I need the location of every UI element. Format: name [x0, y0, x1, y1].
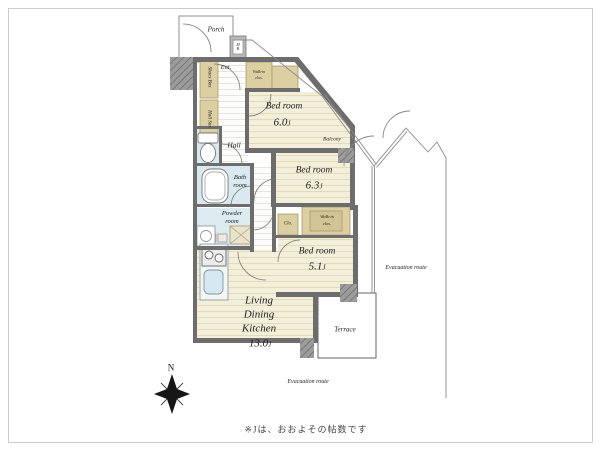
bath-room-label-1: Bath	[234, 175, 246, 182]
hall-storage-label: Hall Sto.	[207, 110, 212, 128]
ldk-size: 13.0J	[249, 339, 271, 350]
walk-in-closet-right-label-1: Walk-in	[320, 215, 334, 220]
walk-in-closet-top-label-1: Walk-in	[253, 70, 265, 74]
bedroom-60-size-value: 6.0	[274, 117, 288, 129]
tatami-note: ※Jは、おおよその帖数です	[244, 426, 367, 435]
evacuation-route-right-label: Evacuation route	[385, 265, 426, 271]
bedroom-63-label: Bed room	[296, 166, 333, 176]
bathtub-icon	[202, 169, 228, 203]
bedroom-51-label: Bed room	[299, 247, 336, 257]
neighbor-door-arc-2	[383, 111, 410, 138]
porch-label: Porch	[208, 27, 225, 34]
bedroom-51-size-unit: J	[322, 264, 325, 272]
bedroom-60-label: Bed room	[266, 102, 303, 112]
bedroom-63-size-unit: J	[319, 183, 322, 191]
ldk-size-unit: J	[268, 341, 271, 349]
bedroom-63-size: 6.3J	[306, 181, 323, 192]
floor-plan: Porch M B Ent. Shoes Box Hall Sto. Hall …	[0, 0, 600, 450]
bedroom-60-size: 6.0J	[274, 118, 291, 129]
powder-room-label-1: Powder	[222, 211, 242, 218]
counter-box-2	[218, 234, 227, 242]
terrace-label: Terrace	[334, 327, 356, 334]
meter-box-label: M B	[235, 43, 241, 51]
walk-in-closet-top-label-2: clos.	[255, 76, 262, 80]
bath-room-label-2: room	[233, 183, 246, 190]
porch-floor	[179, 16, 233, 62]
evacuation-route-bottom-label: Evacuation route	[287, 379, 328, 385]
shoes-box-label: Shoes Box	[207, 67, 212, 88]
compass-north-label: N	[168, 364, 175, 373]
bedroom-51-size-value: 5.1	[309, 261, 323, 273]
sink-icon	[204, 270, 223, 294]
powder-room-label-2: room	[225, 219, 238, 226]
compass-icon	[154, 374, 190, 414]
balcony-label: Balcony	[323, 137, 341, 143]
entrance-label: Ent.	[221, 65, 232, 72]
closet-label: Clo.	[284, 222, 292, 227]
washing-machine-icon	[197, 226, 215, 246]
ldk-label-dining: Dining	[244, 310, 275, 321]
bedroom-60-size-unit: J	[287, 120, 290, 128]
hall-label: Hall	[227, 141, 240, 149]
bedroom-51-size: 5.1J	[309, 262, 326, 273]
closet-top-box2	[272, 66, 298, 90]
ldk-size-value: 13.0	[249, 338, 268, 350]
ldk-label-kitchen: Kitchen	[242, 324, 276, 335]
bedroom-63-size-value: 6.3	[306, 180, 320, 192]
walk-in-closet-right-label-2: clos.	[323, 222, 331, 227]
kitchen-counter	[200, 244, 228, 300]
ldk-label-living: Living	[245, 296, 273, 307]
